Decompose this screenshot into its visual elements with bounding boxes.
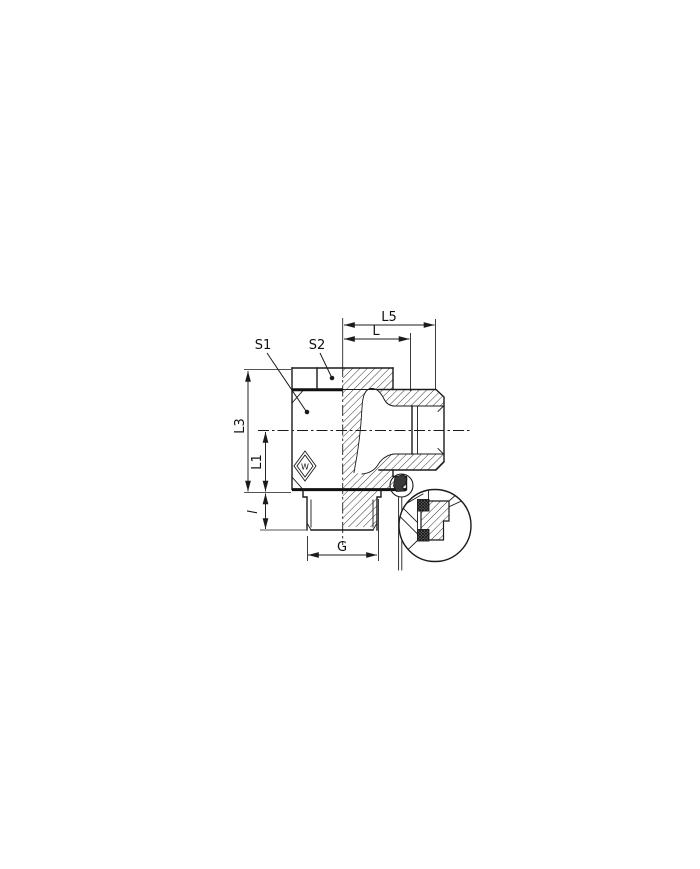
detail-seal-lower: [418, 530, 430, 542]
technical-drawing: L5 L L3 L1 l G S1 S2: [0, 0, 700, 869]
brand-diamond-logo: W: [294, 451, 316, 481]
dim-label-L: L: [372, 324, 380, 339]
dimension-l: l: [246, 494, 306, 531]
dimension-L1: L1: [250, 432, 266, 492]
dim-label-L1: L1: [250, 454, 265, 470]
dim-label-G: G: [337, 540, 347, 555]
detail-seal-upper: [418, 500, 430, 512]
leader-dot-s2: [330, 376, 335, 381]
logo-letter: W: [301, 463, 309, 472]
dim-label-L5: L5: [381, 310, 397, 325]
dim-label-L3: L3: [233, 418, 248, 434]
label-S2: S2: [309, 338, 326, 353]
hex-chamfer-bottom: [292, 477, 303, 490]
label-S2-group: S2: [309, 338, 335, 380]
seal-detail-view: [399, 488, 472, 562]
leader-dot-s1: [305, 410, 310, 415]
dim-label-l: l: [246, 510, 261, 514]
drawing-page: L5 L L3 L1 l G S1 S2: [0, 0, 700, 869]
label-S1-group: S1: [255, 338, 310, 414]
label-S1: S1: [255, 338, 272, 353]
dimension-L3: L3: [233, 370, 291, 493]
